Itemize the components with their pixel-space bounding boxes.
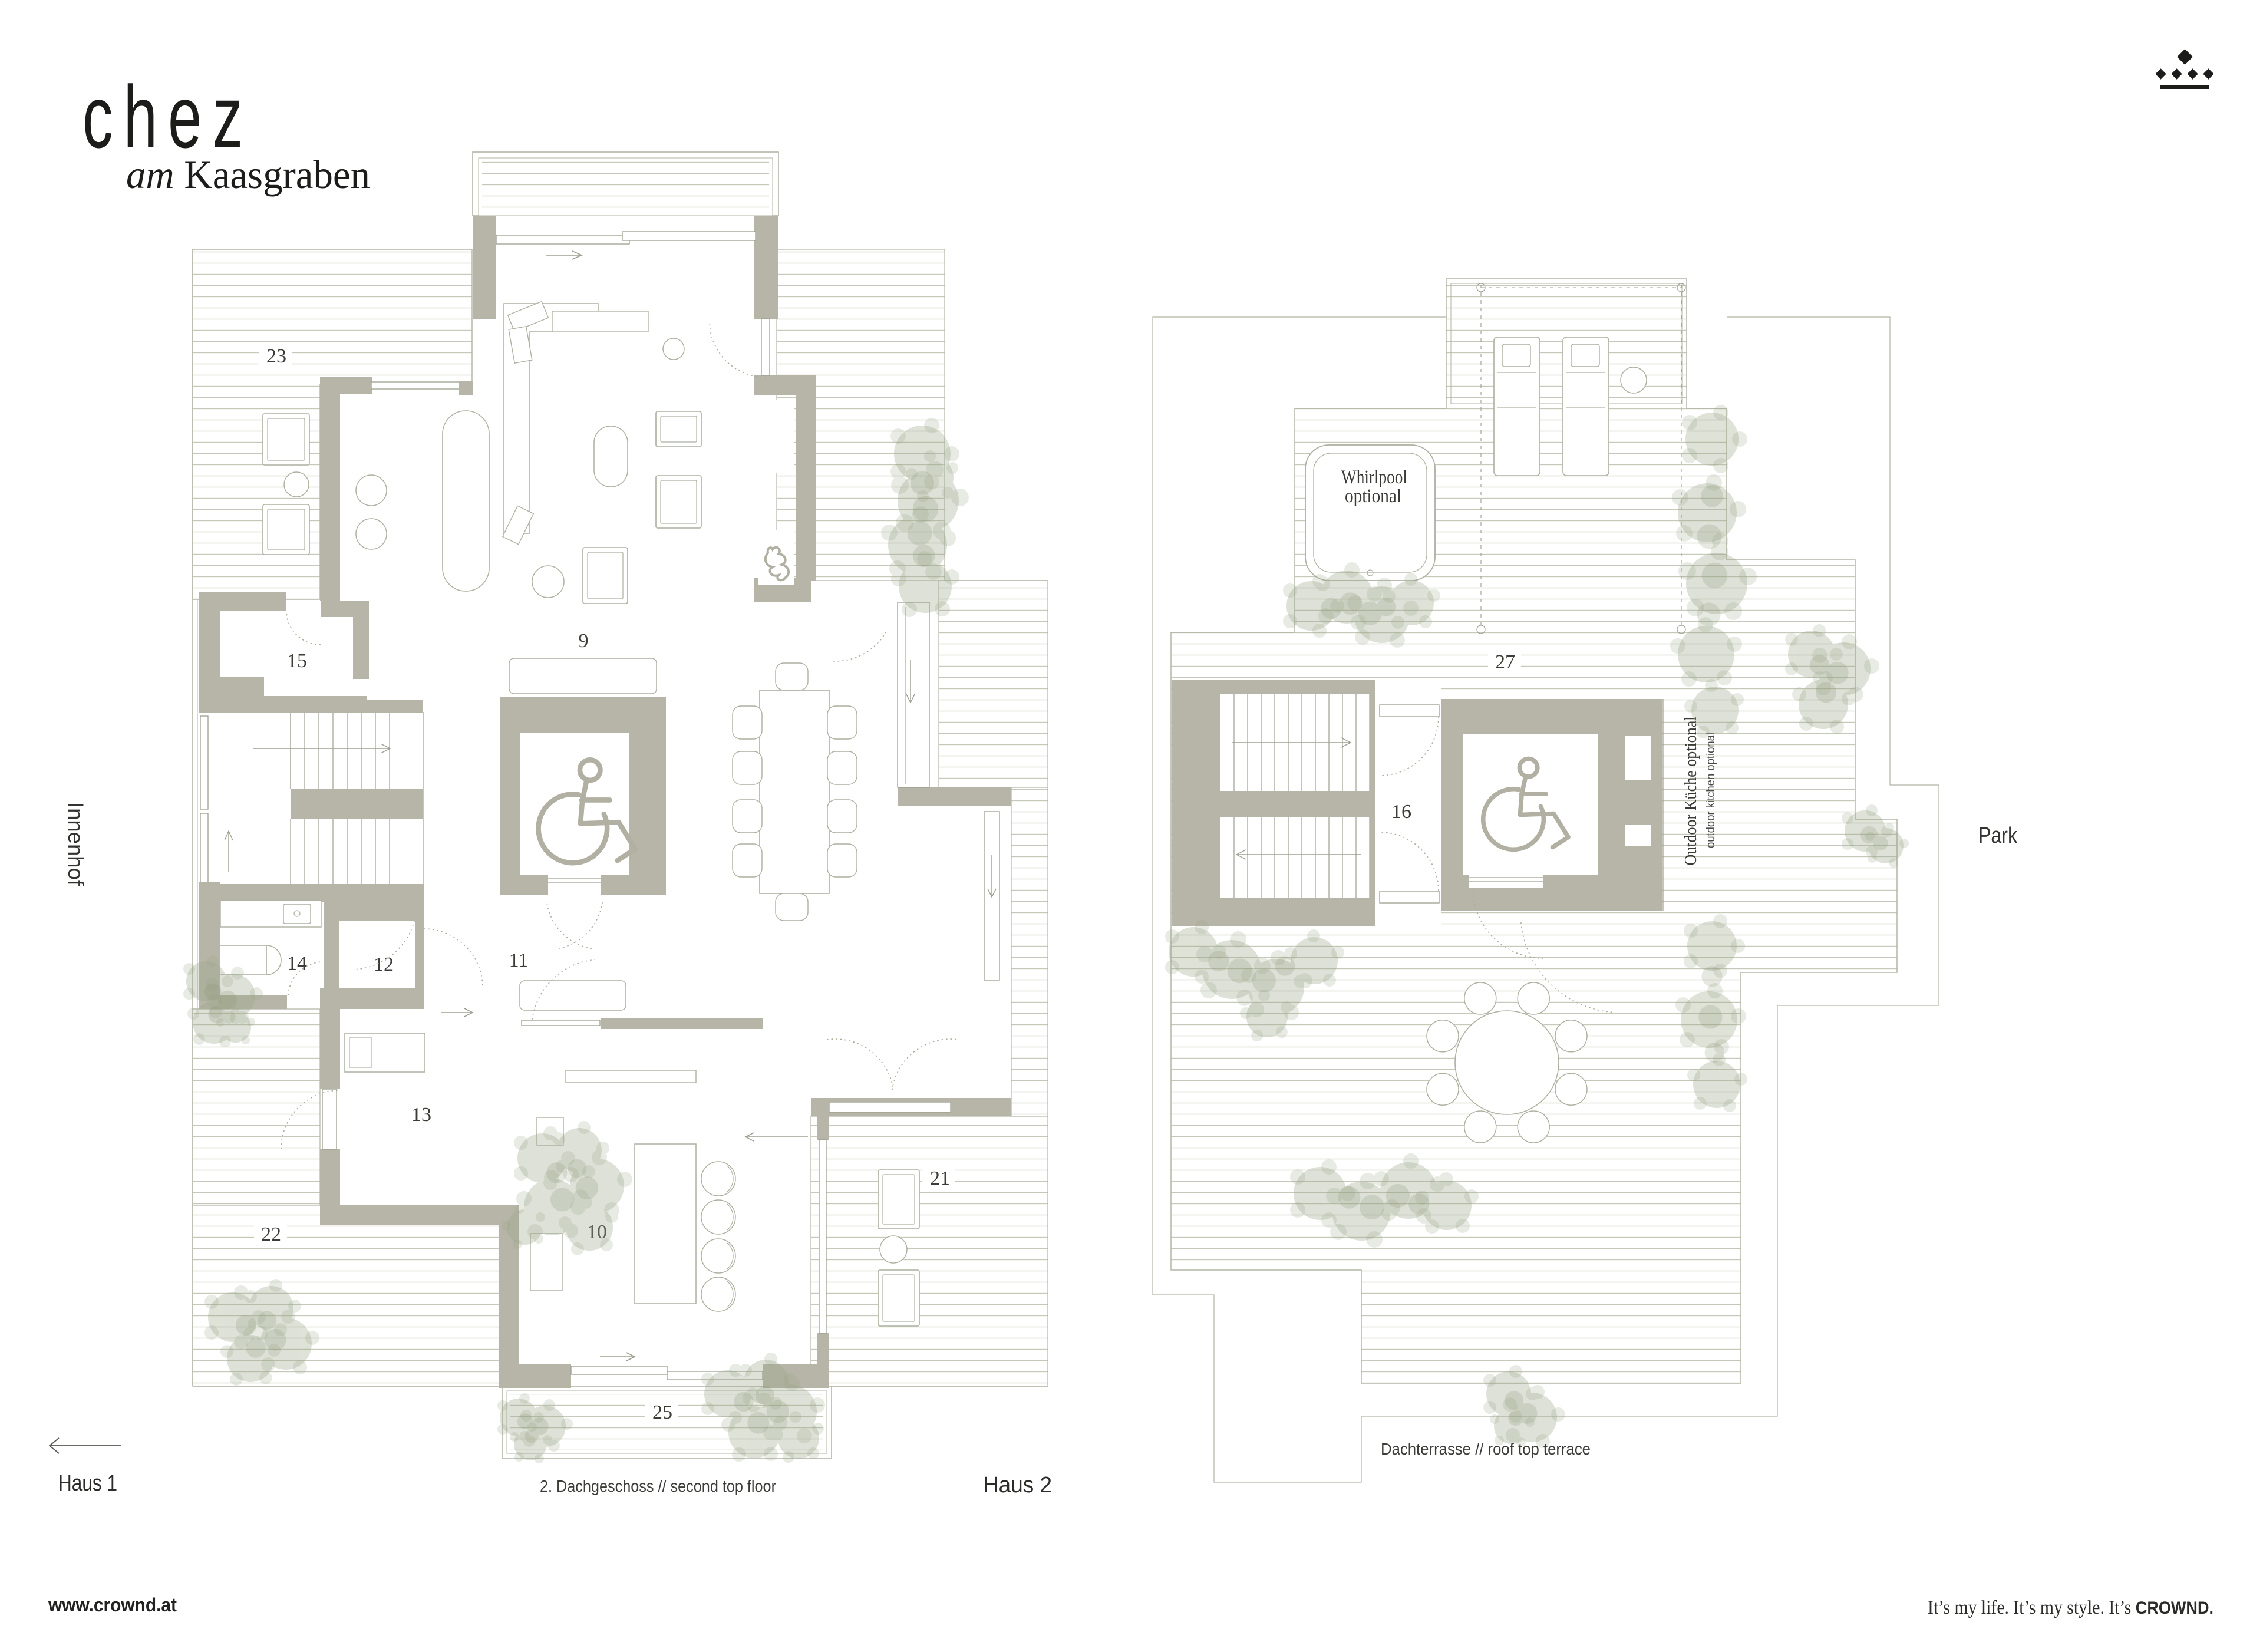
svg-text:9: 9 (579, 630, 589, 652)
svg-text:outdoor kitchen optional: outdoor kitchen optional (1704, 733, 1717, 848)
svg-text:22: 22 (261, 1224, 281, 1245)
svg-text:Park: Park (1978, 823, 2018, 848)
svg-text:Haus 2: Haus 2 (983, 1473, 1052, 1498)
svg-text:23: 23 (266, 345, 286, 367)
svg-text:11: 11 (509, 949, 529, 971)
svg-text:Dachterrasse // roof top terra: Dachterrasse // roof top terrace (1381, 1440, 1591, 1458)
svg-text:It’s my life. It’s my style. I: It’s my life. It’s my style. It’s CROWND… (1928, 1597, 2213, 1618)
svg-text:12: 12 (374, 954, 394, 975)
svg-text:13: 13 (411, 1104, 431, 1126)
svg-text:Outdoor Küche optional: Outdoor Küche optional (1681, 717, 1700, 866)
svg-text:15: 15 (287, 650, 307, 672)
svg-text:Haus 1: Haus 1 (58, 1471, 117, 1496)
svg-text:27: 27 (1495, 651, 1515, 673)
svg-text:14: 14 (287, 952, 307, 974)
svg-text:25: 25 (652, 1402, 672, 1423)
svg-text:Whirlpool: Whirlpool (1341, 467, 1407, 488)
svg-text:www.crownd.at: www.crownd.at (48, 1594, 177, 1615)
svg-text:2. Dachgeschoss // second top: 2. Dachgeschoss // second top floor (540, 1477, 776, 1495)
svg-text:21: 21 (930, 1168, 950, 1189)
svg-text:chez: chez (83, 67, 253, 166)
svg-text:optional: optional (1345, 486, 1401, 507)
svg-text:16: 16 (1391, 801, 1411, 823)
svg-text:Innenhof: Innenhof (64, 802, 88, 886)
svg-text:am Kaasgraben: am Kaasgraben (126, 152, 370, 197)
